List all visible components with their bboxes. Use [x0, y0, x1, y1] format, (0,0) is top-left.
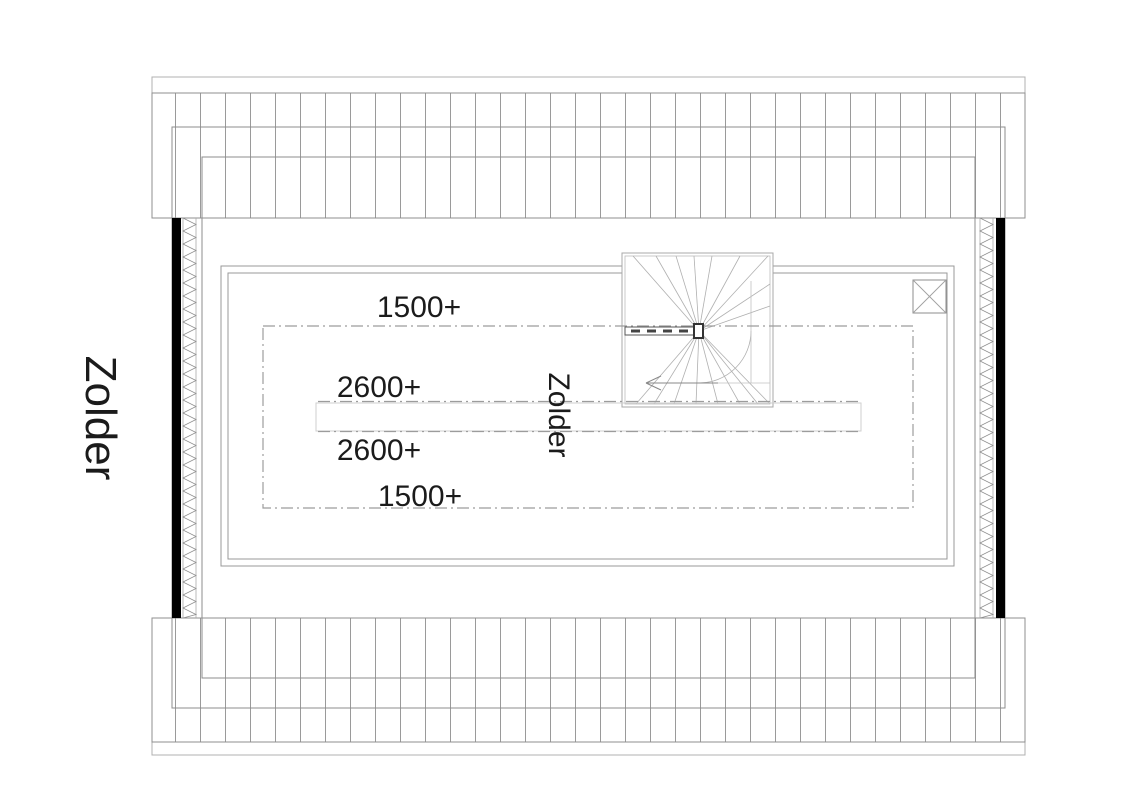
gable-wall-right	[996, 218, 1005, 618]
attic-floor-plan: Zolder Zolder 1500+ 2600+ 2600+ 1500+	[0, 0, 1133, 800]
height-marker-1500-front: 1500+	[377, 291, 461, 325]
room-walls	[221, 266, 954, 566]
chimney-duct	[913, 280, 946, 313]
stair-newel-post	[694, 324, 703, 338]
roof-surface-bottom	[152, 618, 1025, 755]
roof-edge-outline-inner	[202, 157, 975, 678]
height-marker-2600-back: 2600+	[337, 434, 421, 468]
height-contour-1500	[263, 326, 913, 508]
room-name-label: Zolder	[541, 372, 575, 457]
flat-ceiling-outline	[316, 403, 861, 431]
insulation-right	[980, 218, 993, 618]
height-marker-1500-back: 1500+	[378, 480, 462, 514]
height-marker-2600-front: 2600+	[337, 371, 421, 405]
roof-surface-top	[152, 77, 1025, 218]
gable-wall-left	[172, 218, 181, 618]
floor-title-label: Zolder	[75, 356, 125, 481]
height-contour-2600	[318, 402, 861, 432]
insulation-left	[183, 218, 196, 618]
